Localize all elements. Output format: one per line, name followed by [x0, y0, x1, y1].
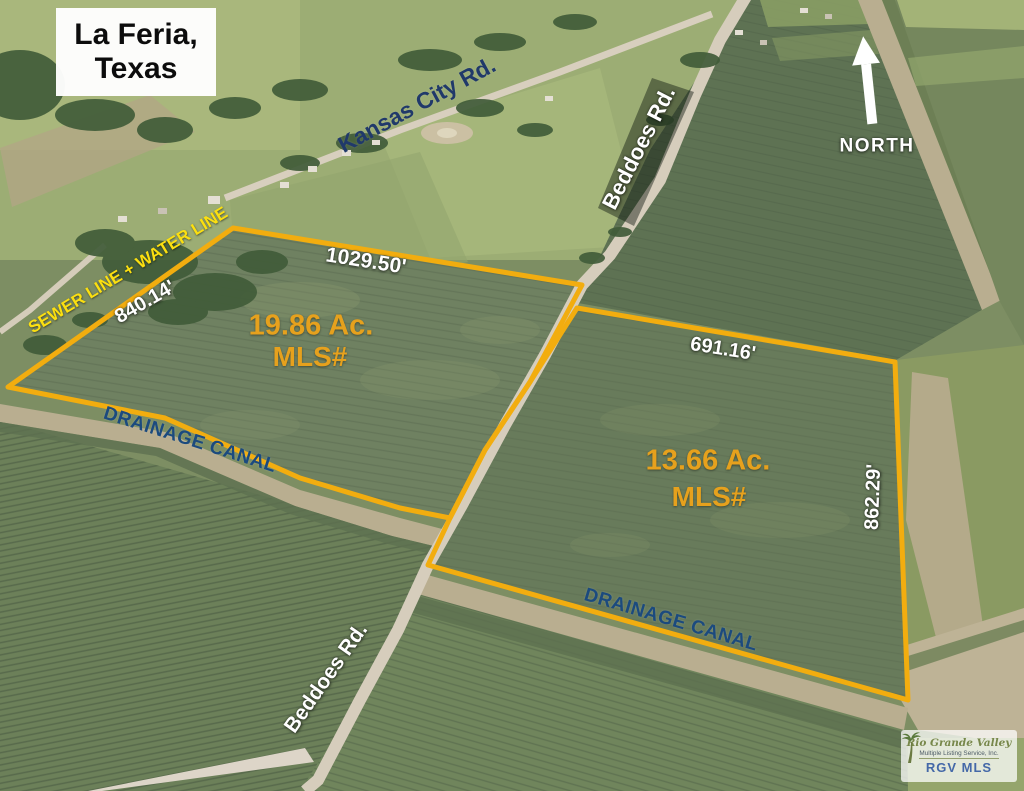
parcel-boundary-left: [8, 228, 582, 518]
mls-subtitle: Multiple Listing Service, Inc.: [919, 750, 998, 759]
north-arrow-icon: [849, 35, 886, 125]
mls-abbreviation: RGV MLS: [926, 760, 992, 775]
mls-watermark: Rio Grande Valley Multiple Listing Servi…: [901, 730, 1017, 782]
mls-brand-name: Rio Grande Valley: [907, 737, 1012, 749]
east-length-label-right-parcel: 862.29': [862, 464, 884, 531]
palm-tree-icon: [901, 730, 921, 764]
parcel-boundary-right: [428, 308, 908, 700]
city-title-box: La Feria, Texas: [56, 8, 216, 96]
area-label-right-parcel: 13.66 Ac.: [646, 447, 771, 476]
city-title-line2: Texas: [95, 52, 178, 86]
city-title-line1: La Feria,: [74, 18, 197, 52]
mls-label-right-parcel: MLS#: [672, 483, 747, 511]
north-label: NORTH: [839, 137, 914, 156]
real-estate-aerial-flyer: La Feria, Texas Kansas City Rd. Beddoes …: [0, 0, 1024, 791]
annotation-overlay: [0, 0, 1024, 791]
mls-label-left-parcel: MLS#: [273, 343, 348, 371]
area-label-left-parcel: 19.86 Ac.: [249, 312, 374, 341]
